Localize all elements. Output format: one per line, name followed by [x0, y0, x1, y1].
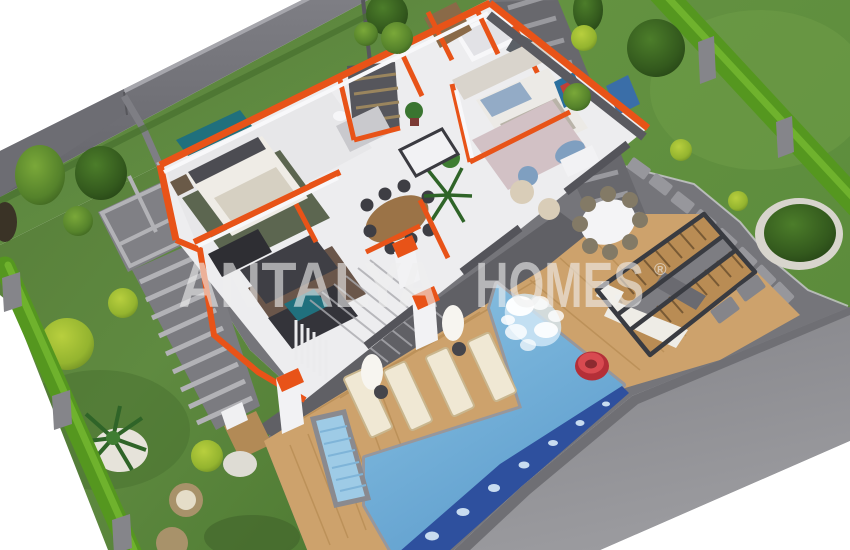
svg-text:ANTALYA: ANTALYA	[178, 249, 438, 320]
svg-text:®: ®	[654, 260, 667, 279]
svg-text:HOMES: HOMES	[475, 250, 644, 321]
